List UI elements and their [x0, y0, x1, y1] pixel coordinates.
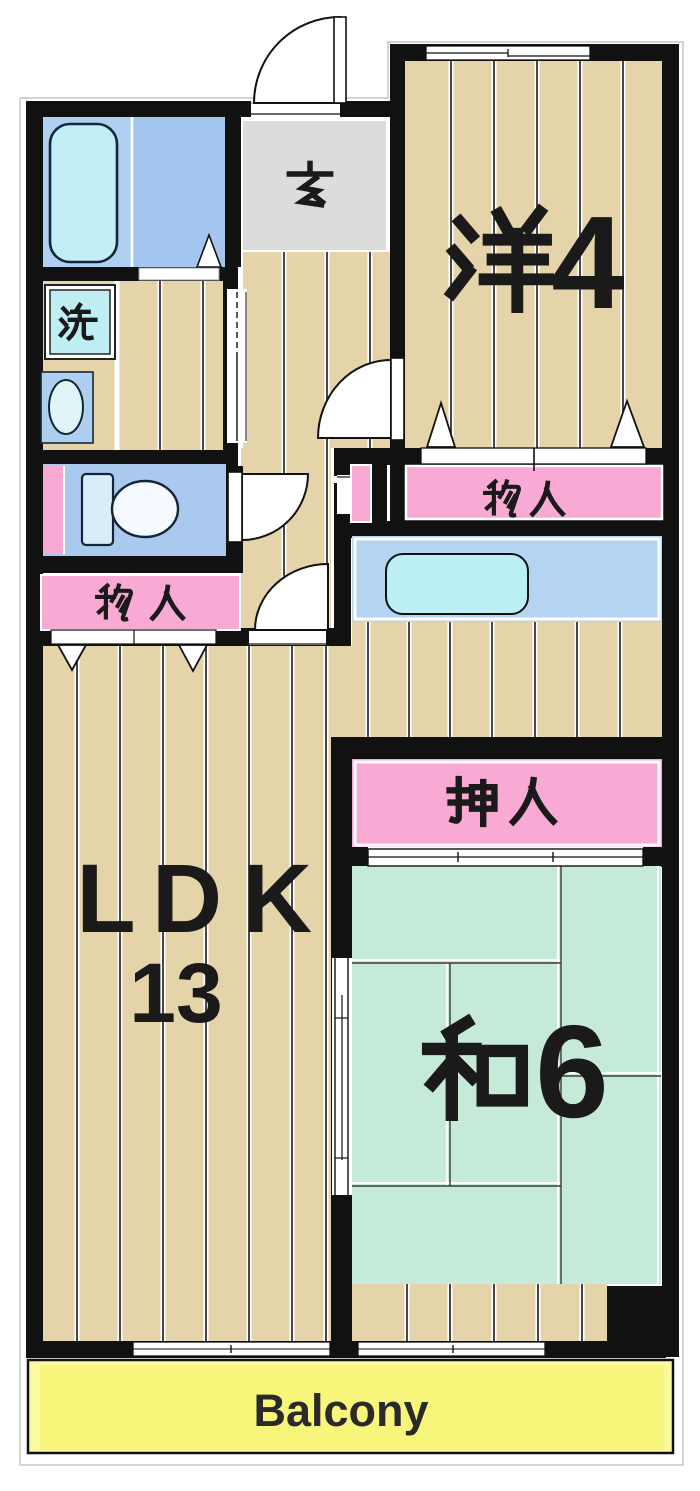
- svg-text:13: 13: [129, 946, 222, 1040]
- svg-text:D: D: [152, 844, 222, 953]
- svg-text:4: 4: [551, 189, 624, 336]
- svg-text:K: K: [242, 844, 312, 953]
- svg-text:6: 6: [535, 998, 608, 1145]
- svg-text:Balcony: Balcony: [253, 1385, 428, 1436]
- svg-text:L: L: [76, 844, 135, 953]
